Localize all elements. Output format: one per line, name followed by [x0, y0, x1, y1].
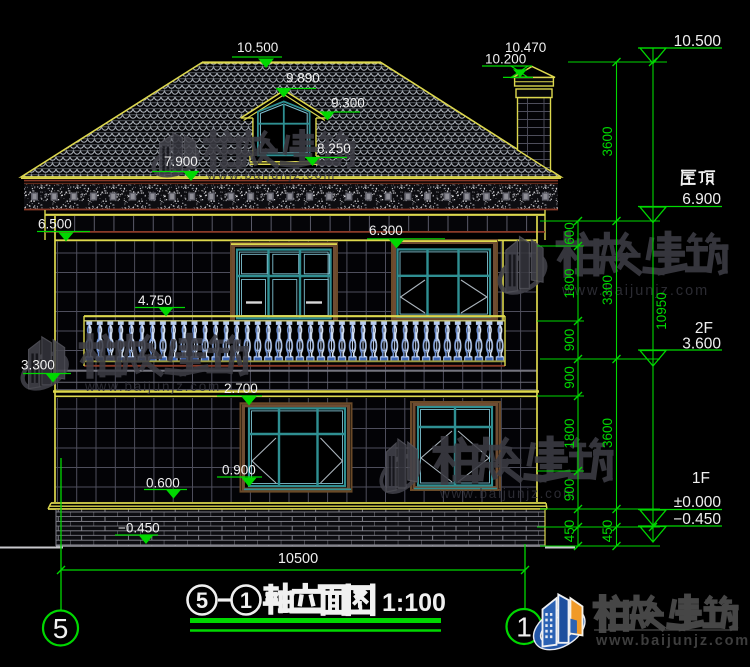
svg-text:www.baijunjz.com: www.baijunjz.com [439, 486, 576, 501]
svg-text:3.300: 3.300 [21, 358, 55, 373]
svg-text:−0.450: −0.450 [673, 511, 721, 528]
svg-text:3.600: 3.600 [682, 336, 721, 353]
svg-text:6.900: 6.900 [682, 191, 721, 208]
svg-text:900: 900 [562, 366, 577, 389]
svg-text:1800: 1800 [562, 268, 577, 298]
svg-text:9.890: 9.890 [286, 71, 320, 86]
svg-text:−0.450: −0.450 [118, 521, 160, 536]
svg-text:1: 1 [516, 612, 532, 643]
svg-text:2F: 2F [695, 320, 713, 337]
svg-text:www.baijunjz.com: www.baijunjz.com [84, 379, 221, 394]
svg-text:0.900: 0.900 [222, 463, 256, 478]
svg-text:www.baijunjz.com: www.baijunjz.com [595, 633, 750, 649]
svg-text:8.250: 8.250 [317, 141, 351, 156]
svg-text:10.200: 10.200 [485, 52, 526, 67]
svg-text:5: 5 [196, 588, 208, 613]
svg-text:6.300: 6.300 [369, 223, 403, 238]
svg-text:3600: 3600 [600, 126, 615, 156]
svg-text:1: 1 [240, 588, 252, 613]
svg-text:450: 450 [562, 520, 577, 543]
svg-text:2.700: 2.700 [224, 381, 258, 396]
svg-text:10.500: 10.500 [674, 33, 722, 50]
svg-text:1:100: 1:100 [382, 589, 446, 617]
svg-text:1800: 1800 [562, 418, 577, 448]
svg-text:900: 900 [562, 479, 577, 502]
svg-text:www.baijunjz.com: www.baijunjz.com [206, 167, 336, 182]
svg-text:0.600: 0.600 [146, 476, 180, 491]
svg-text:900: 900 [562, 329, 577, 352]
svg-text:6.500: 6.500 [38, 217, 72, 232]
svg-text:10500: 10500 [278, 551, 318, 567]
svg-text:5: 5 [53, 613, 69, 644]
svg-text:10.500: 10.500 [237, 40, 278, 55]
svg-text:9.300: 9.300 [331, 96, 365, 111]
svg-text:4.750: 4.750 [138, 293, 172, 308]
svg-text:www.baijunjz.com: www.baijunjz.com [561, 283, 709, 299]
svg-text:600: 600 [562, 222, 577, 245]
svg-text:1F: 1F [692, 470, 710, 487]
svg-text:3300: 3300 [600, 275, 615, 305]
svg-text:450: 450 [600, 520, 615, 543]
svg-text:3600: 3600 [600, 418, 615, 448]
svg-text:±0.000: ±0.000 [674, 494, 722, 511]
svg-text:10950: 10950 [654, 292, 669, 330]
svg-text:7.900: 7.900 [164, 154, 198, 169]
